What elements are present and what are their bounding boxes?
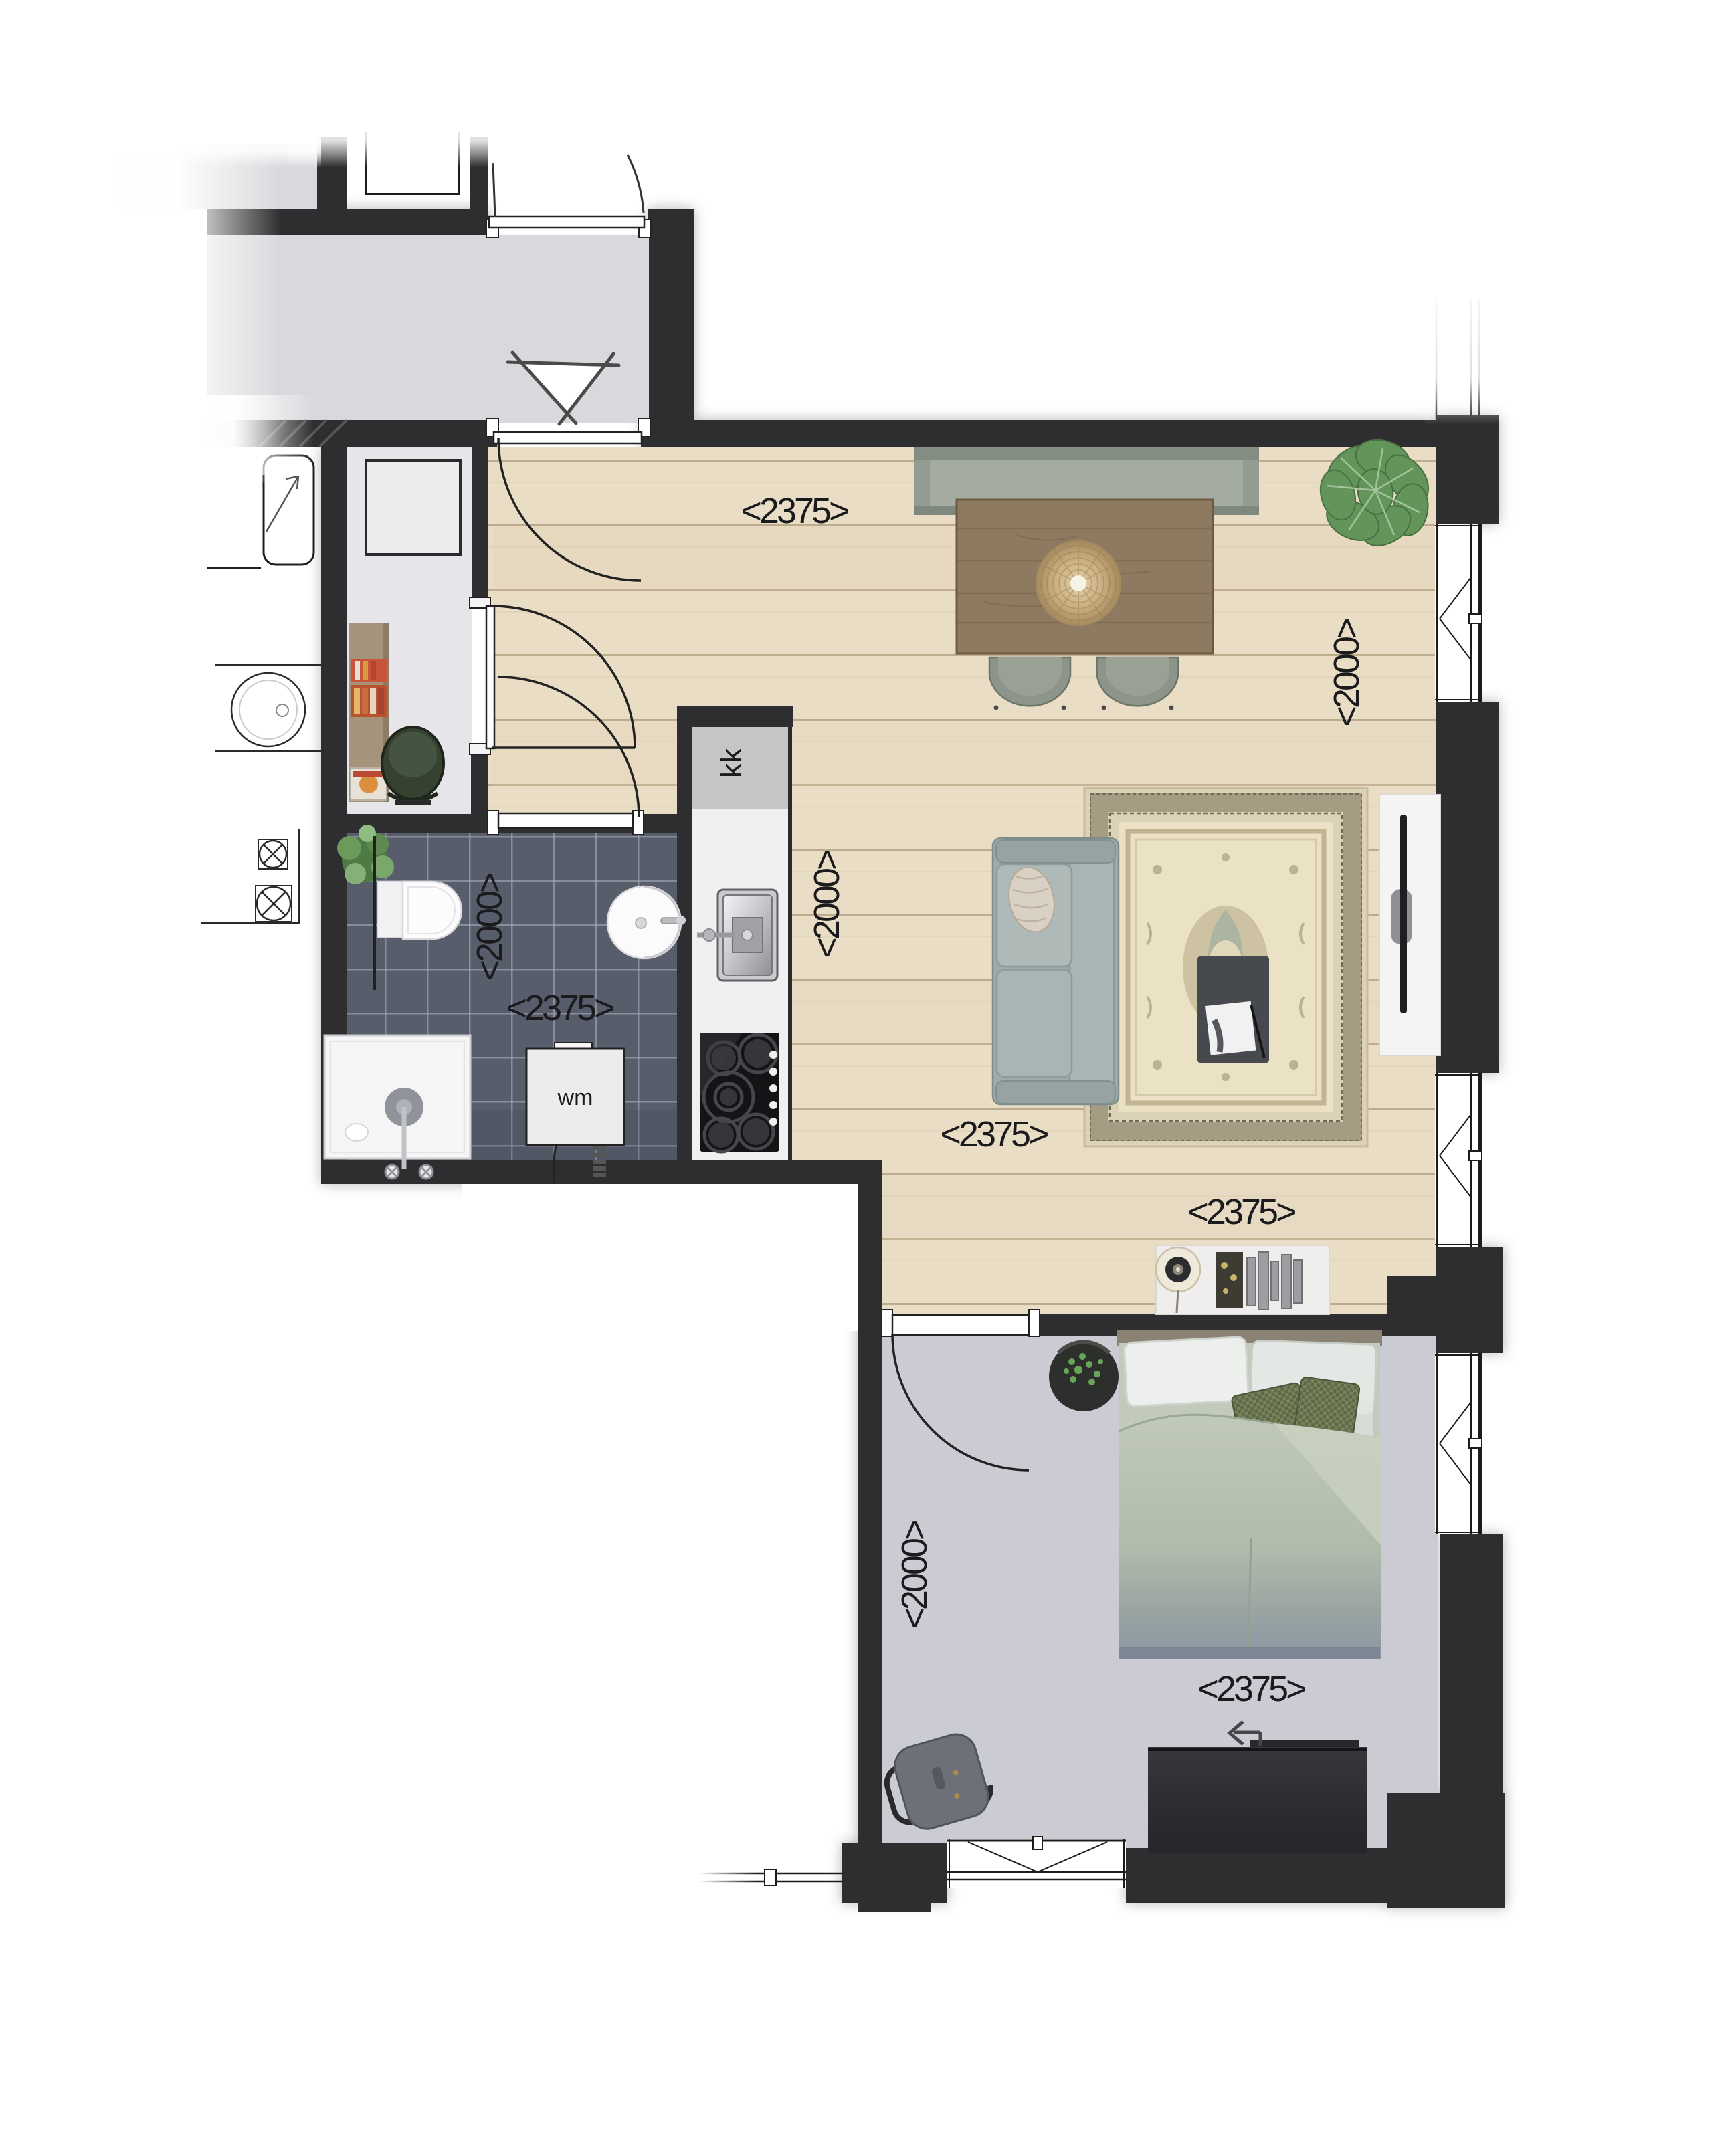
svg-text:<2375>: <2375> [1187,1192,1295,1232]
svg-text:<2000>: <2000> [1327,619,1367,727]
svg-text:kk: kk [715,748,748,778]
svg-text:<2375>: <2375> [1197,1669,1305,1709]
svg-text:<2000>: <2000> [470,874,510,981]
svg-text:wm: wm [557,1085,593,1110]
svg-text:<2000>: <2000> [807,851,847,958]
svg-text:<2375>: <2375> [506,988,613,1028]
svg-text:<2000>: <2000> [894,1521,935,1629]
svg-text:<2375>: <2375> [741,491,848,531]
svg-text:<2375>: <2375> [940,1114,1048,1154]
